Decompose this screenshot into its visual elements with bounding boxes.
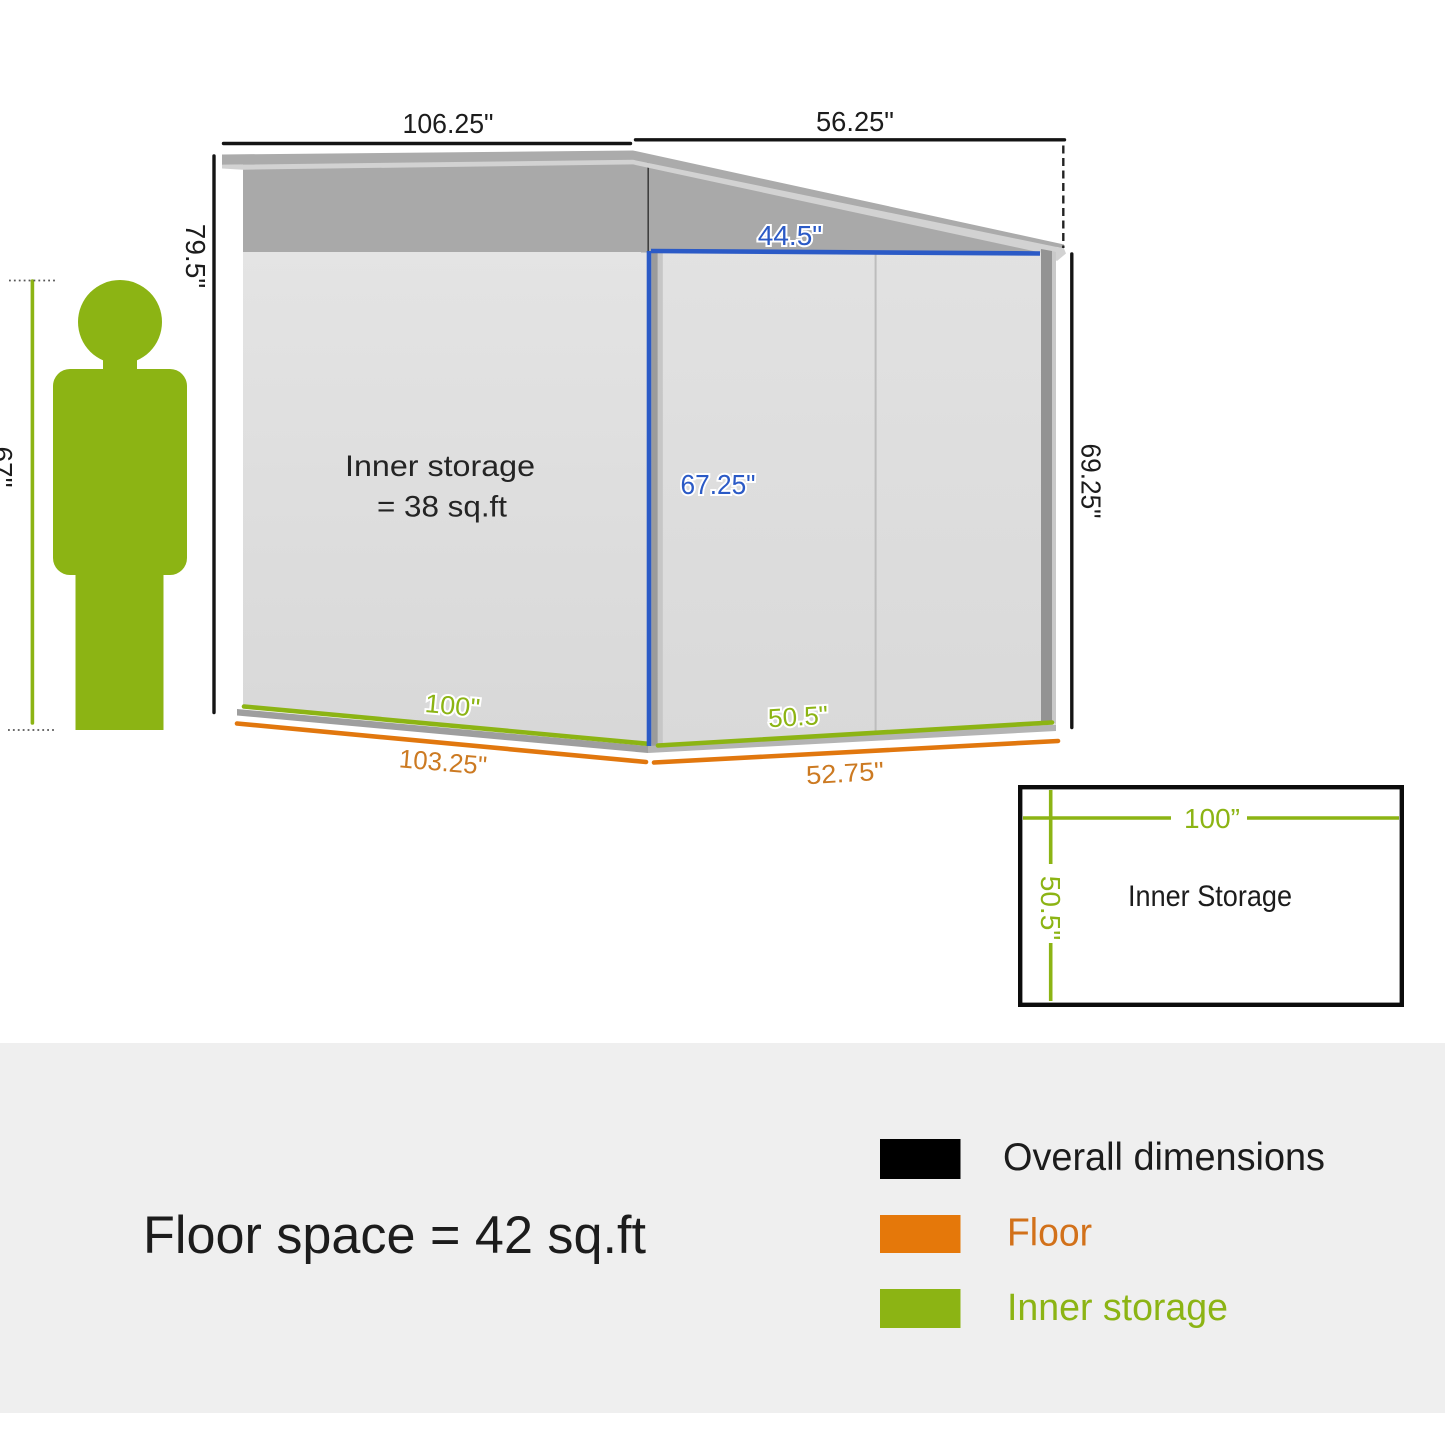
svg-text:69.25": 69.25" <box>1076 444 1107 519</box>
svg-text:50.5": 50.5" <box>1035 876 1066 940</box>
svg-text:Overall dimensions: Overall dimensions <box>1003 1136 1325 1179</box>
svg-text:106.25": 106.25" <box>403 108 494 139</box>
svg-text:44.5": 44.5" <box>758 220 822 251</box>
svg-text:Floor: Floor <box>1007 1212 1092 1255</box>
svg-text:Inner Storage: Inner Storage <box>1128 880 1292 913</box>
svg-text:79.5": 79.5" <box>180 224 211 288</box>
svg-text:52.75": 52.75" <box>805 756 885 791</box>
svg-text:100": 100" <box>424 688 482 723</box>
svg-text:67.25": 67.25" <box>681 469 756 500</box>
svg-text:= 38 sq.ft: = 38 sq.ft <box>377 491 508 524</box>
svg-text:Floor space = 42 sq.ft: Floor space = 42 sq.ft <box>143 1206 646 1265</box>
svg-text:67": 67" <box>0 446 18 487</box>
svg-text:Inner storage: Inner storage <box>1007 1287 1228 1329</box>
svg-text:Inner storage: Inner storage <box>345 450 535 483</box>
svg-text:100”: 100” <box>1184 803 1240 834</box>
svg-text:56.25": 56.25" <box>816 106 894 137</box>
svg-text:50.5": 50.5" <box>767 700 829 734</box>
